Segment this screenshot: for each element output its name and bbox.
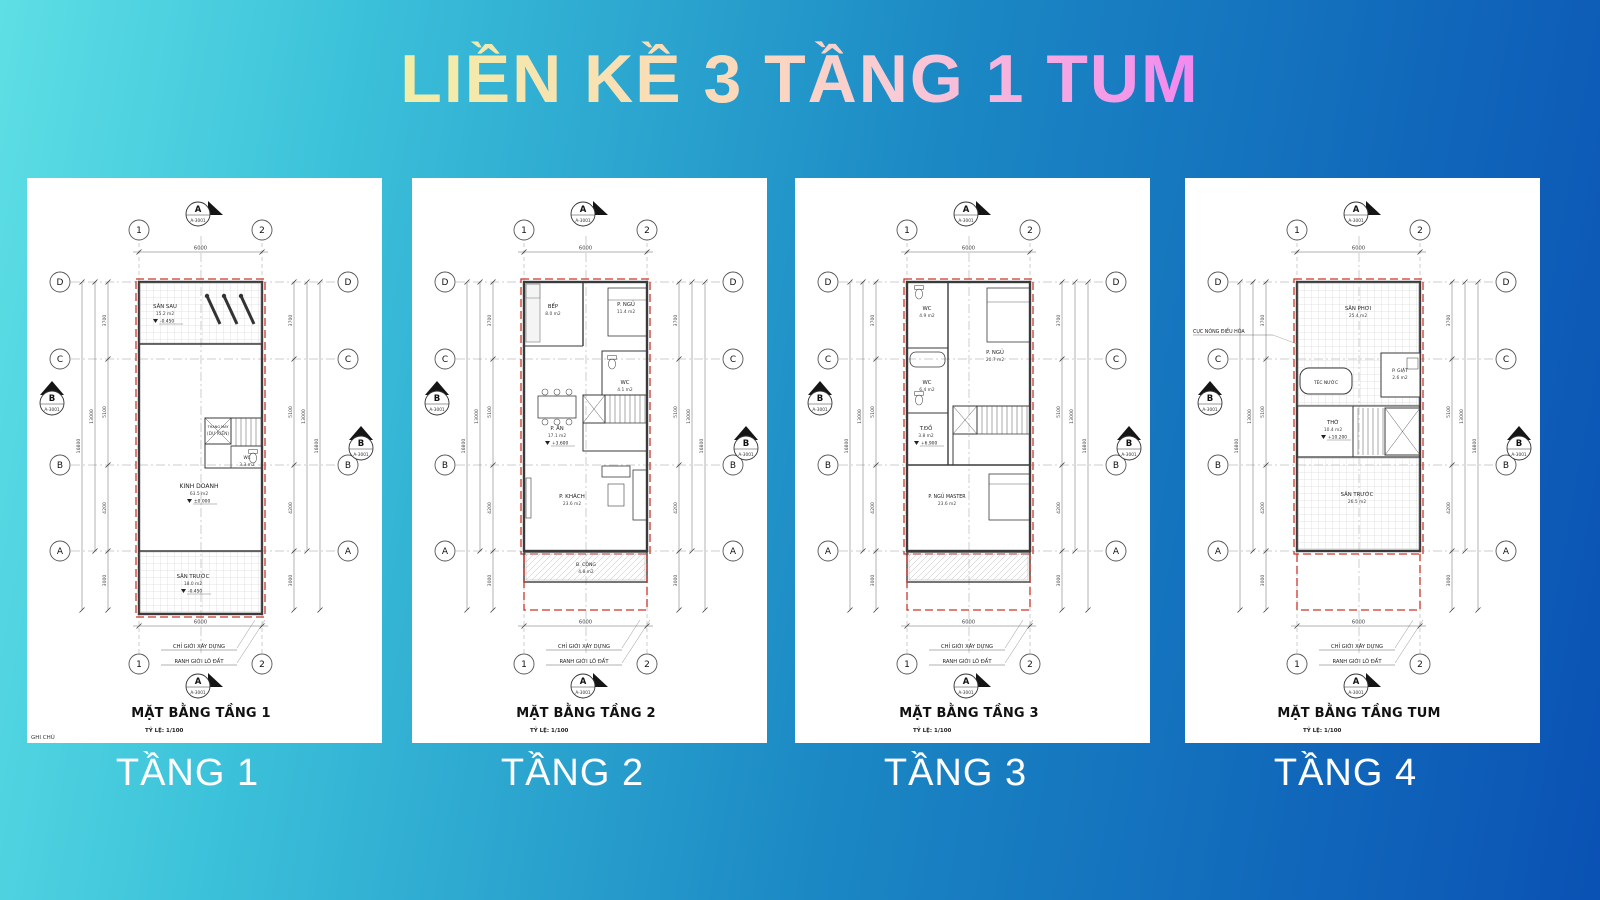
svg-text:16800: 16800	[461, 439, 467, 454]
svg-text:A-3001: A-3001	[575, 218, 591, 224]
svg-text:B: B	[743, 439, 749, 449]
svg-text:C: C	[345, 355, 351, 365]
svg-text:16800: 16800	[1472, 439, 1478, 454]
svg-text:4200: 4200	[1260, 502, 1266, 514]
floor-label-tang-1: TẦNG 1	[10, 752, 365, 795]
svg-text:B: B	[1215, 461, 1221, 471]
svg-text:B. CÔNG: B. CÔNG	[576, 561, 596, 568]
plan-content: 1212DDCCBBAAAA-3001AA-3001BA-3001BA-3001…	[1193, 201, 1531, 734]
plan-content: 1212DDCCBBAAAA-3001AA-3001BA-3001BA-3001…	[425, 201, 758, 734]
svg-text:P. KHÁCH: P. KHÁCH	[559, 493, 585, 500]
svg-text:A-3001: A-3001	[190, 690, 206, 696]
svg-text:A: A	[345, 547, 352, 557]
svg-text:3700: 3700	[487, 315, 493, 327]
svg-text:A-3001: A-3001	[190, 218, 206, 224]
svg-text:A: A	[580, 677, 587, 687]
svg-text:P. NGỦ MASTER: P. NGỦ MASTER	[928, 492, 966, 500]
svg-text:+10.200: +10.200	[1328, 435, 1347, 441]
svg-text:6000: 6000	[962, 246, 975, 252]
svg-text:13000: 13000	[301, 409, 307, 424]
svg-text:B: B	[345, 461, 351, 471]
svg-text:A-3001: A-3001	[738, 452, 754, 458]
svg-text:THỜ: THỜ	[1326, 419, 1339, 426]
svg-text:A-3001: A-3001	[44, 407, 60, 413]
svg-text:SÂN SAU: SÂN SAU	[153, 303, 177, 310]
svg-text:3.8 m2: 3.8 m2	[918, 433, 934, 439]
svg-text:63.5 m2: 63.5 m2	[190, 491, 208, 497]
svg-text:5100: 5100	[1260, 406, 1266, 418]
svg-text:13000: 13000	[474, 409, 480, 424]
svg-text:4200: 4200	[673, 502, 679, 514]
svg-text:3000: 3000	[1260, 575, 1266, 587]
svg-text:A: A	[963, 677, 970, 687]
page-title: LIỀN KỀ 3 TẦNG 1 TUM	[200, 22, 1400, 132]
svg-text:A-3001: A-3001	[1202, 407, 1218, 413]
svg-text:1: 1	[904, 660, 910, 670]
svg-text:3700: 3700	[1260, 315, 1266, 327]
svg-text:CỤC NÓNG ĐIỀU HÒA: CỤC NÓNG ĐIỀU HÒA	[1193, 327, 1245, 335]
svg-text:20.7 m2: 20.7 m2	[986, 357, 1004, 363]
svg-text:1: 1	[521, 226, 527, 236]
svg-text:A-3001: A-3001	[1511, 452, 1527, 458]
svg-text:B: B	[57, 461, 63, 471]
svg-text:T.ĐỒ: T.ĐỒ	[919, 423, 933, 432]
svg-text:A-3001: A-3001	[958, 690, 974, 696]
svg-text:B: B	[1113, 461, 1119, 471]
svg-text:3000: 3000	[673, 575, 679, 587]
svg-text:A: A	[1113, 547, 1120, 557]
svg-text:2: 2	[1417, 226, 1423, 236]
svg-text:A: A	[1215, 547, 1222, 557]
svg-text:3000: 3000	[1056, 575, 1062, 587]
svg-text:RANH GIỚI LÔ ĐẤT: RANH GIỚI LÔ ĐẤT	[559, 657, 609, 665]
svg-text:WC: WC	[923, 380, 932, 386]
svg-text:P. ĂN: P. ĂN	[550, 425, 563, 432]
svg-text:3000: 3000	[102, 575, 108, 587]
svg-text:3700: 3700	[1446, 315, 1452, 327]
svg-text:6000: 6000	[194, 620, 207, 626]
svg-text:16800: 16800	[314, 439, 320, 454]
svg-text:4200: 4200	[288, 502, 294, 514]
svg-text:TỶ LỆ: 1/100: TỶ LỆ: 1/100	[530, 726, 569, 734]
svg-text:C: C	[1503, 355, 1509, 365]
svg-text:D: D	[57, 278, 64, 288]
svg-text:23.6 m2: 23.6 m2	[563, 501, 581, 507]
floor-plan-drawing-tang-3: 1212DDCCBBAAAA-3001AA-3001BA-3001BA-3001…	[795, 178, 1150, 743]
svg-text:TỶ LỆ: 1/100: TỶ LỆ: 1/100	[145, 726, 184, 734]
svg-text:+6.900: +6.900	[921, 441, 937, 447]
svg-text:A: A	[195, 677, 202, 687]
svg-text:3700: 3700	[1056, 315, 1062, 327]
svg-text:A: A	[1503, 547, 1510, 557]
svg-text:16800: 16800	[699, 439, 705, 454]
svg-text:-0.450: -0.450	[160, 319, 174, 325]
svg-text:6000: 6000	[1352, 620, 1365, 626]
svg-text:B: B	[442, 461, 448, 471]
svg-text:2: 2	[1027, 660, 1033, 670]
svg-text:BẾP: BẾP	[548, 302, 559, 310]
svg-text:B: B	[358, 439, 364, 449]
svg-text:WC: WC	[621, 380, 630, 386]
svg-text:1: 1	[904, 226, 910, 236]
svg-text:3700: 3700	[870, 315, 876, 327]
svg-text:+3.600: +3.600	[552, 441, 568, 447]
svg-text:5100: 5100	[673, 406, 679, 418]
svg-text:3000: 3000	[487, 575, 493, 587]
svg-text:5100: 5100	[870, 406, 876, 418]
svg-text:A: A	[1353, 677, 1360, 687]
svg-text:A: A	[963, 205, 970, 215]
svg-text:CHỈ GIỚI XÂY DỰNG: CHỈ GIỚI XÂY DỰNG	[941, 642, 993, 650]
svg-text:8.0 m2: 8.0 m2	[545, 311, 561, 317]
svg-text:RANH GIỚI LÔ ĐẤT: RANH GIỚI LÔ ĐẤT	[1332, 657, 1382, 665]
svg-text:A-3001: A-3001	[1121, 452, 1137, 458]
svg-text:THANG MÁY: THANG MÁY	[207, 424, 230, 429]
svg-text:KINH DOANH: KINH DOANH	[180, 483, 219, 490]
svg-text:4200: 4200	[870, 502, 876, 514]
poster-page: LIỀN KỀ 3 TẦNG 1 TUM 1212DDCCBBAAAA-3001…	[0, 0, 1600, 900]
svg-text:C: C	[57, 355, 63, 365]
svg-text:5100: 5100	[1446, 406, 1452, 418]
svg-text:6000: 6000	[194, 246, 207, 252]
svg-text:1: 1	[521, 660, 527, 670]
svg-text:D: D	[1215, 278, 1222, 288]
svg-text:D: D	[825, 278, 832, 288]
svg-text:6000: 6000	[579, 620, 592, 626]
svg-text:13000: 13000	[1247, 409, 1253, 424]
svg-text:A: A	[730, 547, 737, 557]
svg-text:15.2 m2: 15.2 m2	[156, 311, 174, 317]
svg-text:2: 2	[1417, 660, 1423, 670]
svg-text:D: D	[1503, 278, 1510, 288]
svg-text:CHỈ GIỚI XÂY DỰNG: CHỈ GIỚI XÂY DỰNG	[173, 642, 225, 650]
svg-text:D: D	[442, 278, 449, 288]
svg-text:TỶ LỆ: 1/100: TỶ LỆ: 1/100	[913, 726, 952, 734]
svg-text:23.6 m2: 23.6 m2	[938, 501, 956, 507]
svg-text:A-3001: A-3001	[812, 407, 828, 413]
svg-text:1: 1	[136, 226, 142, 236]
svg-text:SÂN PHƠI: SÂN PHƠI	[1345, 305, 1372, 312]
svg-text:B: B	[49, 394, 55, 404]
svg-text:5100: 5100	[487, 406, 493, 418]
svg-text:13000: 13000	[89, 409, 95, 424]
svg-text:WC: WC	[923, 306, 932, 312]
svg-text:4.1 m2: 4.1 m2	[617, 387, 633, 393]
svg-text:11.4 m2: 11.4 m2	[617, 309, 635, 315]
svg-text:±0.000: ±0.000	[194, 499, 210, 505]
svg-text:SÂN TRƯỚC: SÂN TRƯỚC	[177, 573, 210, 580]
svg-text:4.9 m2: 4.9 m2	[919, 313, 935, 319]
svg-text:A-3001: A-3001	[1348, 690, 1364, 696]
svg-text:16800: 16800	[1234, 439, 1240, 454]
svg-text:MẶT BẰNG TẦNG TUM: MẶT BẰNG TẦNG TUM	[1277, 703, 1440, 721]
floor-plan-drawing-tang-tum: 1212DDCCBBAAAA-3001AA-3001BA-3001BA-3001…	[1185, 178, 1540, 743]
svg-text:C: C	[442, 355, 448, 365]
svg-text:16800: 16800	[1082, 439, 1088, 454]
svg-text:2: 2	[259, 226, 265, 236]
svg-text:SÂN TRƯỚC: SÂN TRƯỚC	[1341, 491, 1374, 498]
floor-plan-panel-tang-2: 1212DDCCBBAAAA-3001AA-3001BA-3001BA-3001…	[412, 178, 767, 743]
svg-text:B: B	[825, 461, 831, 471]
svg-text:B: B	[730, 461, 736, 471]
svg-text:A-3001: A-3001	[575, 690, 591, 696]
floor-plan-drawing-tang-1: 1212DDCCBBAAAA-3001AA-3001BA-3001BA-3001…	[27, 178, 382, 743]
floor-label-tang-2: TẦNG 2	[395, 752, 750, 795]
floor-plan-panel-tang-3: 1212DDCCBBAAAA-3001AA-3001BA-3001BA-3001…	[795, 178, 1150, 743]
floor-label-tang-3: TẦNG 3	[778, 752, 1133, 795]
svg-text:13000: 13000	[1459, 409, 1465, 424]
svg-text:A: A	[580, 205, 587, 215]
svg-text:4200: 4200	[102, 502, 108, 514]
svg-text:6000: 6000	[579, 246, 592, 252]
svg-text:3700: 3700	[673, 315, 679, 327]
svg-text:17.1 m2: 17.1 m2	[548, 433, 566, 439]
svg-text:RANH GIỚI LÔ ĐẤT: RANH GIỚI LÔ ĐẤT	[942, 657, 992, 665]
svg-text:B: B	[817, 394, 823, 404]
svg-text:A-3001: A-3001	[1348, 218, 1364, 224]
svg-text:RANH GIỚI LÔ ĐẤT: RANH GIỚI LÔ ĐẤT	[174, 657, 224, 665]
svg-text:13000: 13000	[686, 409, 692, 424]
svg-text:(DỰ KIẾN): (DỰ KIẾN)	[207, 429, 229, 437]
svg-text:P. NGỦ: P. NGỦ	[986, 348, 1004, 356]
svg-text:C: C	[730, 355, 736, 365]
svg-text:A: A	[825, 547, 832, 557]
svg-text:MẶT BẰNG TẦNG 2: MẶT BẰNG TẦNG 2	[516, 703, 656, 721]
svg-text:3700: 3700	[288, 315, 294, 327]
svg-text:D: D	[1113, 278, 1120, 288]
svg-text:P. GIẶT: P. GIẶT	[1392, 367, 1408, 374]
svg-text:A: A	[1353, 205, 1360, 215]
svg-text:WC: WC	[243, 455, 250, 460]
svg-text:2: 2	[644, 226, 650, 236]
floor-plan-panel-tang-tum: 1212DDCCBBAAAA-3001AA-3001BA-3001BA-3001…	[1185, 178, 1540, 743]
floor-plan-drawing-tang-2: 1212DDCCBBAAAA-3001AA-3001BA-3001BA-3001…	[412, 178, 767, 743]
svg-text:3.3 m2: 3.3 m2	[239, 462, 255, 468]
svg-text:A: A	[442, 547, 449, 557]
svg-text:A: A	[195, 205, 202, 215]
svg-text:B: B	[1126, 439, 1132, 449]
svg-text:C: C	[1215, 355, 1221, 365]
svg-text:CHỈ GIỚI XÂY DỰNG: CHỈ GIỚI XÂY DỰNG	[558, 642, 610, 650]
svg-text:2: 2	[644, 660, 650, 670]
svg-text:1: 1	[1294, 660, 1300, 670]
svg-text:MẶT BẰNG TẦNG 3: MẶT BẰNG TẦNG 3	[899, 703, 1039, 721]
svg-text:4200: 4200	[1446, 502, 1452, 514]
svg-text:TỶ LỆ: 1/100: TỶ LỆ: 1/100	[1303, 726, 1342, 734]
svg-text:2: 2	[259, 660, 265, 670]
svg-text:5100: 5100	[102, 406, 108, 418]
svg-text:GHI CHÚ: GHI CHÚ	[31, 734, 55, 741]
svg-text:26.5 m2: 26.5 m2	[1348, 499, 1366, 505]
svg-text:10.4 m2: 10.4 m2	[1324, 427, 1342, 433]
svg-text:-0.450: -0.450	[188, 589, 202, 595]
svg-text:D: D	[730, 278, 737, 288]
svg-text:18.0 m2: 18.0 m2	[184, 581, 202, 587]
svg-text:B: B	[1207, 394, 1213, 404]
svg-text:A-3001: A-3001	[958, 218, 974, 224]
svg-text:3700: 3700	[102, 315, 108, 327]
floor-label-tang-4: TẦNG 4	[1168, 752, 1523, 795]
svg-text:2.6 m2: 2.6 m2	[1392, 375, 1408, 381]
svg-text:2: 2	[1027, 226, 1033, 236]
svg-text:1: 1	[136, 660, 142, 670]
svg-text:B: B	[1516, 439, 1522, 449]
plan-content: 1212DDCCBBAAAA-3001AA-3001BA-3001BA-3001…	[808, 201, 1141, 734]
svg-text:A: A	[57, 547, 64, 557]
svg-text:5100: 5100	[288, 406, 294, 418]
svg-text:P. NGỦ: P. NGỦ	[617, 300, 635, 308]
svg-text:A-3001: A-3001	[353, 452, 369, 458]
plan-content: 1212DDCCBBAAAA-3001AA-3001BA-3001BA-3001…	[31, 201, 373, 741]
svg-text:B: B	[1503, 461, 1509, 471]
svg-text:6000: 6000	[1352, 246, 1365, 252]
svg-text:D: D	[345, 278, 352, 288]
svg-text:4200: 4200	[487, 502, 493, 514]
svg-text:3000: 3000	[288, 575, 294, 587]
page-title-text: LIỀN KỀ 3 TẦNG 1 TUM	[400, 40, 1199, 117]
svg-text:1: 1	[1294, 226, 1300, 236]
svg-text:B: B	[434, 394, 440, 404]
svg-text:13000: 13000	[857, 409, 863, 424]
svg-text:4200: 4200	[1056, 502, 1062, 514]
svg-text:C: C	[825, 355, 831, 365]
svg-text:4.8 m2: 4.8 m2	[578, 569, 594, 575]
svg-text:3000: 3000	[1446, 575, 1452, 587]
svg-text:5100: 5100	[1056, 406, 1062, 418]
svg-text:C: C	[1113, 355, 1119, 365]
svg-text:3000: 3000	[870, 575, 876, 587]
svg-text:16800: 16800	[844, 439, 850, 454]
svg-text:13000: 13000	[1069, 409, 1075, 424]
svg-text:25.4 m2: 25.4 m2	[1349, 313, 1367, 319]
svg-text:MẶT BẰNG TẦNG 1: MẶT BẰNG TẦNG 1	[131, 703, 271, 721]
svg-text:16800: 16800	[76, 439, 82, 454]
floor-plan-panel-tang-1: 1212DDCCBBAAAA-3001AA-3001BA-3001BA-3001…	[27, 178, 382, 743]
svg-text:6.4 m2: 6.4 m2	[919, 387, 935, 393]
svg-text:6000: 6000	[962, 620, 975, 626]
svg-text:CHỈ GIỚI XÂY DỰNG: CHỈ GIỚI XÂY DỰNG	[1331, 642, 1383, 650]
svg-text:A-3001: A-3001	[429, 407, 445, 413]
